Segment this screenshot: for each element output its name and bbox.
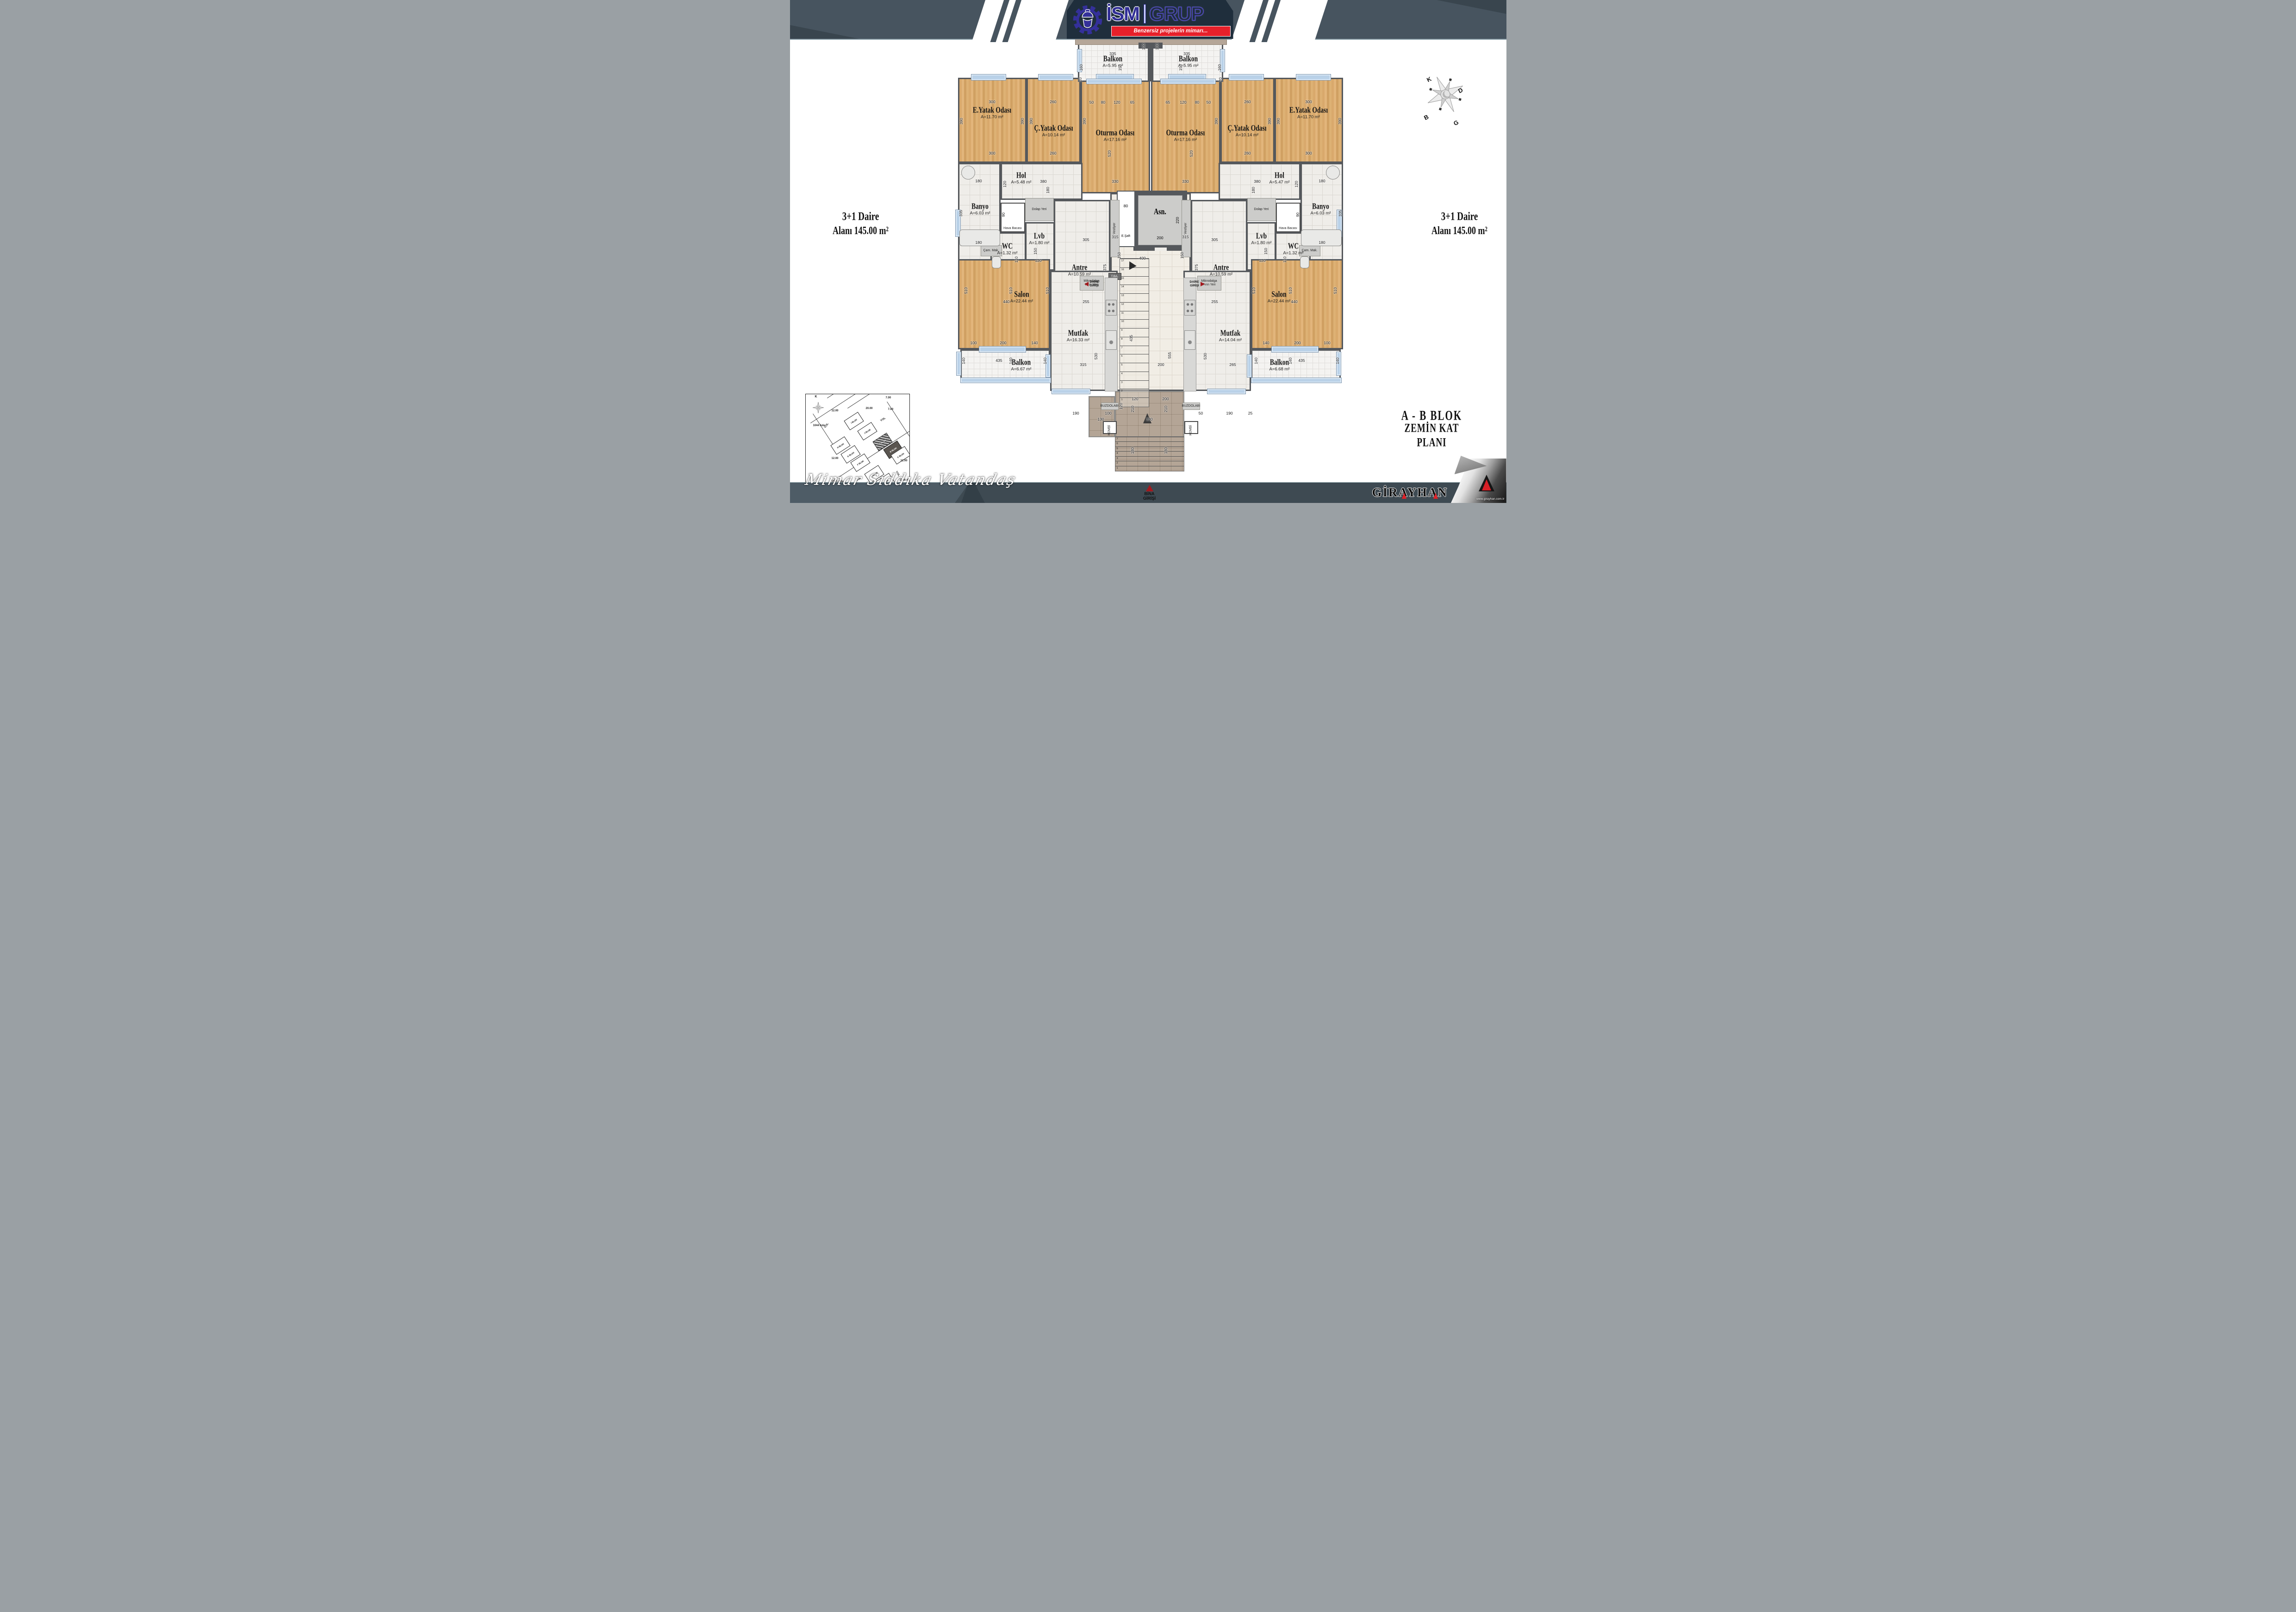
dimension-label: 100 xyxy=(970,341,977,345)
dimension-label: 375 xyxy=(1102,264,1107,271)
dimension-label: 255 xyxy=(1083,299,1089,304)
entrance-step: 5 xyxy=(1115,446,1184,451)
dimension-label: 150 xyxy=(1118,64,1122,71)
stair-tread: 8 xyxy=(1120,337,1149,346)
site-block-j-blok: J BLOK xyxy=(857,422,877,440)
stair-tread: 5 xyxy=(1120,363,1149,372)
room-name-label: Balkon xyxy=(1270,357,1289,367)
room-area-label: A=16.33 m² xyxy=(1067,338,1089,343)
dimension-label: 150 xyxy=(1178,64,1183,71)
dimension-label: 335 xyxy=(1338,210,1343,217)
room-area-label: A=14.04 m² xyxy=(1219,338,1242,343)
dimension-label: 120 xyxy=(1294,181,1299,187)
dimension-label: 390 xyxy=(1214,118,1219,124)
fixture-dolap-yeri: Dolap Yeri xyxy=(1025,198,1054,221)
dimension-label: 180 xyxy=(1045,187,1050,193)
dimension-label: 90 xyxy=(1001,212,1006,217)
room-name-label: Oturma Odası xyxy=(1166,128,1205,138)
dimension-label: 65 xyxy=(1166,100,1170,105)
room-name-label: Oturma Odası xyxy=(1096,128,1135,138)
architect-signature: Mimar Sıddıka Vatandaş xyxy=(803,471,1018,489)
window xyxy=(1160,79,1216,84)
site-label: 12.00 xyxy=(832,409,839,412)
window xyxy=(960,378,1051,383)
fixture-hava-bacas-: Hava Bacası xyxy=(1276,203,1300,232)
dimension-label: 200 xyxy=(1157,362,1164,367)
apartment-entry-marker-left: DAİREGİRİŞİ xyxy=(1084,280,1099,288)
dimension-label: 180 xyxy=(1319,179,1325,183)
dimension-label: 510 xyxy=(1008,287,1013,294)
room-name-label: E.Yatak Odası xyxy=(1289,105,1328,115)
elevator-label: Asn. xyxy=(1154,208,1166,217)
dimension-label: 255 xyxy=(1211,299,1218,304)
dimension-label: 20 xyxy=(1078,77,1083,81)
dimension-label: 260 xyxy=(1244,99,1251,104)
elevator-height-dim: 220 xyxy=(1175,217,1180,223)
window xyxy=(1038,74,1073,81)
site-label: 20.00 xyxy=(866,407,873,410)
dimension-label: 315 xyxy=(1112,235,1118,239)
dimension-label: 140 xyxy=(1335,358,1340,364)
building-entrance-label: BİNA GİRİŞİ xyxy=(1131,485,1168,501)
stair-tread: 10 xyxy=(1120,319,1149,328)
dimension-label: 20 xyxy=(1218,77,1223,81)
casework xyxy=(1106,300,1117,316)
casework xyxy=(1326,166,1340,180)
dimension-label: 510 xyxy=(1333,287,1338,294)
dimension-label: 100 xyxy=(1105,411,1111,415)
dimension-label: 375 xyxy=(1194,264,1199,271)
room-area-label: A=6.68 m² xyxy=(1269,367,1289,372)
dimension-label: 200 xyxy=(1294,341,1300,345)
main-staircase: 1716151413121110987654321 xyxy=(1120,258,1149,407)
room-area-label: A=1.32 m² xyxy=(997,251,1017,256)
dimension-label: 330 xyxy=(1146,417,1152,422)
casework xyxy=(961,166,975,180)
room-name-label: Hol xyxy=(1016,170,1026,180)
window xyxy=(971,74,1006,81)
fixture-kombi-: KOMBİ xyxy=(1184,421,1198,434)
dimension-label: 510 xyxy=(964,287,968,294)
room-area-label: A=1.32 m² xyxy=(1283,251,1303,256)
dimension-label: 435 xyxy=(1298,358,1305,363)
room-area-label: A=5.48 m² xyxy=(1011,180,1031,185)
dimension-label: 510 xyxy=(1288,287,1293,294)
site-label: 12.00 xyxy=(832,457,839,460)
room-name-label: WC xyxy=(1002,241,1013,251)
dimension-label: 150 xyxy=(1033,248,1038,254)
dimension-label: 120 xyxy=(1180,100,1186,105)
building-entrance-arrow-icon xyxy=(1146,485,1153,491)
dimension-label: 190 xyxy=(1072,411,1079,415)
room-area-label: A=6.03 m² xyxy=(1310,211,1331,216)
site-label: 1044 Ada xyxy=(813,424,825,427)
elevator-width-dim: 200 xyxy=(1157,236,1163,240)
dimension-label: 555 xyxy=(1167,352,1172,359)
dimension-label: 190 xyxy=(1226,411,1232,415)
room-area-label: A=10.59 m² xyxy=(1210,272,1232,277)
site-label: 12.00 xyxy=(901,459,908,462)
dimension-label: 180 xyxy=(1251,187,1256,193)
window xyxy=(1229,74,1264,81)
shaft-width-dim: 80 xyxy=(1124,204,1128,208)
site-compass-letter: K xyxy=(815,395,817,398)
dimension-label: 435 xyxy=(996,358,1002,363)
dimension-label: 140 xyxy=(1031,341,1038,345)
stair-tread: 14 xyxy=(1120,285,1149,293)
dimension-label: 210 xyxy=(1130,406,1135,412)
stair-tread: 11 xyxy=(1120,311,1149,320)
room-name-label: Antre xyxy=(1213,262,1229,273)
room-name-label: Mutfak xyxy=(1068,328,1089,338)
window xyxy=(1296,74,1331,81)
dimension-label: 390 xyxy=(1276,118,1281,124)
entrance-step: 7 xyxy=(1115,437,1184,441)
room-name-label: WC xyxy=(1288,241,1299,251)
dimension-label: 50 xyxy=(1207,100,1211,105)
fixture-hava-bacas-: Hava Bacası xyxy=(1001,203,1025,232)
dimension-label: 120 xyxy=(1132,397,1138,401)
dimension-label: 260 xyxy=(1050,151,1056,155)
entrance-step: 3 xyxy=(1115,456,1184,461)
site-block-i-blok: I BLOK xyxy=(844,412,864,430)
elevator: Asn. 200 220 xyxy=(1133,191,1187,251)
dimension-label: 335 xyxy=(958,210,963,217)
room-name-label: Ç.Yatak Odası xyxy=(1034,123,1073,133)
room-area-label: A=6.67 m² xyxy=(1011,367,1031,372)
room-name-label: Banyo xyxy=(971,201,989,211)
entrance-step: 1 xyxy=(1115,466,1184,471)
dimension-label: 80 xyxy=(1101,100,1105,105)
dimension-label: 140 xyxy=(1043,358,1047,364)
dimension-label: 100 xyxy=(1155,43,1159,50)
window xyxy=(1086,79,1142,84)
dimension-label: 130 xyxy=(1097,417,1104,422)
room-area-label: A=17.16 m² xyxy=(1174,137,1197,143)
entrance-step: 4 xyxy=(1115,451,1184,456)
fixture-kombi-: KOMBİ xyxy=(1103,421,1117,434)
entrance-step: 2 xyxy=(1115,461,1184,465)
room--yatak-odas- xyxy=(1027,78,1081,163)
shaft-label: E.Şaft xyxy=(1121,235,1130,238)
dimension-label: 180 xyxy=(1319,240,1325,245)
dimension-label: 260 xyxy=(1050,99,1056,104)
room-e-yatak-odas- xyxy=(1275,78,1343,163)
stair-tread: 16 xyxy=(1120,267,1149,276)
window xyxy=(979,346,1026,353)
room-area-label: A=6.03 m² xyxy=(970,211,990,216)
dimension-label: 440 xyxy=(1003,299,1009,304)
dimension-label: 160 xyxy=(1217,64,1222,71)
dimension-label: 150 xyxy=(1263,248,1268,254)
dimension-label: 120 xyxy=(1119,403,1123,409)
dimension-label: 120 xyxy=(1002,181,1007,187)
girayhan-red-a-icon xyxy=(1402,493,1406,499)
casework xyxy=(1184,330,1195,350)
apartment-entry-marker-right: DAİREGİRİŞİ xyxy=(1190,280,1205,288)
room-area-label: A=11.70 m² xyxy=(1297,115,1320,120)
curl-a-logo-red-icon xyxy=(1482,479,1491,490)
elevator-cab: Asn. 200 220 xyxy=(1138,195,1182,245)
dimension-label: 390 xyxy=(1267,118,1272,124)
entry-arrow-icon xyxy=(1084,282,1089,286)
room-salon xyxy=(1251,259,1343,349)
casework xyxy=(1300,256,1309,268)
dimension-label: 120 xyxy=(1035,258,1041,263)
stair-tread: 13 xyxy=(1120,293,1149,302)
dimension-label: 300 xyxy=(989,99,995,104)
room-name-label: E.Yatak Odası xyxy=(973,105,1011,115)
dimension-label: 305 xyxy=(1211,237,1218,242)
dimension-label: 140 xyxy=(1008,358,1013,364)
floorplan-sheet: İSMGRUP Benzersiz projelerin mimarı... 3… xyxy=(790,0,1506,503)
site-road-line xyxy=(847,394,910,409)
fixture-vestiyer: Vestiyer xyxy=(1182,200,1191,257)
dimension-label: 530 xyxy=(1203,353,1207,360)
dimension-label: 150 xyxy=(1180,252,1184,259)
dimension-label: 300 xyxy=(989,151,995,155)
room-area-label: A=22.44 m² xyxy=(1268,299,1290,304)
dimension-label: 330 xyxy=(1112,179,1118,184)
dimension-label: 315 xyxy=(1182,235,1188,239)
dimension-label: 390 xyxy=(1338,118,1342,124)
room-area-label: A=1.80 m² xyxy=(1251,241,1271,246)
site-compass-icon xyxy=(812,402,824,414)
room-salon xyxy=(958,259,1050,349)
site-label: 7.00 xyxy=(886,397,891,399)
window xyxy=(1271,346,1319,353)
dimension-label: 110 xyxy=(1282,256,1287,263)
dimension-label: 160 xyxy=(1079,64,1083,71)
page-curl: www.girayhan.com.tr xyxy=(1451,459,1506,503)
dimension-label: 390 xyxy=(1029,118,1033,124)
casework xyxy=(1184,300,1195,316)
dimension-label: 315 xyxy=(1080,362,1086,367)
dimension-label: 100 xyxy=(1141,43,1146,50)
fixture-dolap-yeri: Dolap Yeri xyxy=(1247,198,1276,221)
dimension-label: 100 xyxy=(1324,341,1330,345)
dimension-label: 305 xyxy=(1083,237,1089,242)
room-balkon xyxy=(1251,349,1341,382)
dimension-label: 520 xyxy=(1107,150,1112,157)
dimension-label: 390 xyxy=(1082,118,1087,124)
dimension-label: 140 xyxy=(961,358,966,364)
room--yatak-odas- xyxy=(1220,78,1275,163)
stair-tread: 4 xyxy=(1120,372,1149,380)
room-balkon xyxy=(960,349,1050,382)
room-name-label: Ç.Yatak Odası xyxy=(1227,123,1266,133)
room-area-label: A=1.80 m² xyxy=(1029,241,1049,246)
stair-tread: 7 xyxy=(1120,346,1149,354)
casework xyxy=(1106,330,1117,350)
entry-arrow-icon xyxy=(1201,282,1205,286)
dimension-label: 380 xyxy=(1254,179,1260,184)
dimension-label: 200 xyxy=(1162,397,1169,401)
dimension-label: 80 xyxy=(1195,100,1199,105)
dimension-label: 110 xyxy=(1014,256,1019,263)
dimension-label: 440 xyxy=(1291,299,1297,304)
dimension-label: 260 xyxy=(1244,151,1251,155)
dimension-label: 140 xyxy=(1288,358,1293,364)
room-area-label: A=10.59 m² xyxy=(1068,272,1091,277)
room-name-label: Balkon xyxy=(1012,357,1031,367)
dimension-label: 180 xyxy=(975,179,982,183)
dimension-label: 140 xyxy=(1254,358,1258,364)
casework xyxy=(992,256,1001,268)
dimension-label: 200 xyxy=(1000,341,1006,345)
room-area-label: A=10.14 m² xyxy=(1236,133,1258,138)
wall-pier xyxy=(1149,43,1152,81)
dimension-label: 510 xyxy=(1045,287,1050,294)
dimension-label: 140 xyxy=(1263,341,1269,345)
window xyxy=(956,352,961,376)
window xyxy=(1052,389,1090,394)
site-label: YOL xyxy=(880,417,886,422)
stair-tread: 6 xyxy=(1120,354,1149,363)
elevator-door xyxy=(1155,248,1167,251)
stair-tread: 15 xyxy=(1120,276,1149,285)
room-name-label: Mutfak xyxy=(1220,328,1241,338)
dimension-label: 435 xyxy=(1129,335,1133,341)
dimension-label: 335 xyxy=(1109,51,1116,56)
dimension-label: 180 xyxy=(1164,447,1168,454)
fixture-vestiyer: Vestiyer xyxy=(1110,200,1120,257)
room-area-label: A=10.14 m² xyxy=(1042,133,1065,138)
dimension-label: 390 xyxy=(1020,118,1025,124)
entrance-steps: 7654321 xyxy=(1115,436,1184,471)
fixture-buzdolabi: BUZDOLABI xyxy=(1101,403,1119,410)
girayhan-url: www.girayhan.com.tr xyxy=(1476,497,1504,501)
dimension-label: 25 xyxy=(1248,411,1252,415)
dimension-label: 330 xyxy=(1182,179,1188,184)
dimension-label: 265 xyxy=(1229,362,1236,367)
dimension-label: 400 xyxy=(1139,256,1145,260)
stair-tread: 12 xyxy=(1120,302,1149,311)
dimension-label: 510 xyxy=(1251,287,1256,294)
stair-tread: 9 xyxy=(1120,328,1149,337)
room-name-label: Lvb xyxy=(1034,231,1045,241)
dimension-label: 520 xyxy=(1189,150,1194,157)
electrical-shaft: 80 230 E.Şaft xyxy=(1117,191,1135,247)
fixture-buzdolabi: BUZDOLABI xyxy=(1182,403,1200,410)
dimension-label: 120 xyxy=(1114,100,1120,105)
stair-tread: 3 xyxy=(1120,380,1149,389)
room-name-label: Salon xyxy=(1271,289,1286,299)
room-area-label: A=17.16 m² xyxy=(1104,137,1126,143)
window xyxy=(1251,378,1342,383)
dimension-label: 150 xyxy=(1117,252,1121,259)
dimension-label: 180 xyxy=(1130,447,1135,454)
dimension-label: 65 xyxy=(1130,100,1134,105)
dimension-label: 50 xyxy=(1089,100,1094,105)
dimension-label: 390 xyxy=(959,118,964,124)
dimension-label: 380 xyxy=(1040,179,1046,184)
site-road-line xyxy=(827,394,885,398)
window xyxy=(1207,389,1246,394)
room-area-label: A=11.70 m² xyxy=(981,115,1003,120)
window xyxy=(1247,354,1252,378)
room-name-label: Lvb xyxy=(1256,231,1267,241)
room-name-label: Hol xyxy=(1275,170,1284,180)
dimension-label: 530 xyxy=(1094,353,1098,360)
room-name-label: Salon xyxy=(1014,289,1029,299)
dimension-label: 120 xyxy=(1259,258,1265,263)
dimension-label: 90 xyxy=(1295,212,1300,217)
room-name-label: Banyo xyxy=(1312,201,1329,211)
dimension-label: 300 xyxy=(1305,99,1312,104)
room-area-label: A=5.47 m² xyxy=(1269,180,1289,185)
site-label: 7.00 xyxy=(888,408,894,411)
dimension-label: 300 xyxy=(1305,151,1312,155)
dimension-label: 335 xyxy=(1183,51,1190,56)
dimension-label: 50 xyxy=(1199,411,1203,415)
girayhan-red-a-icon xyxy=(1433,493,1438,499)
dimension-label: 210 xyxy=(1164,406,1168,412)
room-area-label: A=22.44 m² xyxy=(1010,299,1033,304)
room-name-label: Antre xyxy=(1072,262,1088,273)
room-e-yatak-odas- xyxy=(958,78,1027,163)
entrance-step: 6 xyxy=(1115,441,1184,446)
dimension-label: 180 xyxy=(975,240,982,245)
